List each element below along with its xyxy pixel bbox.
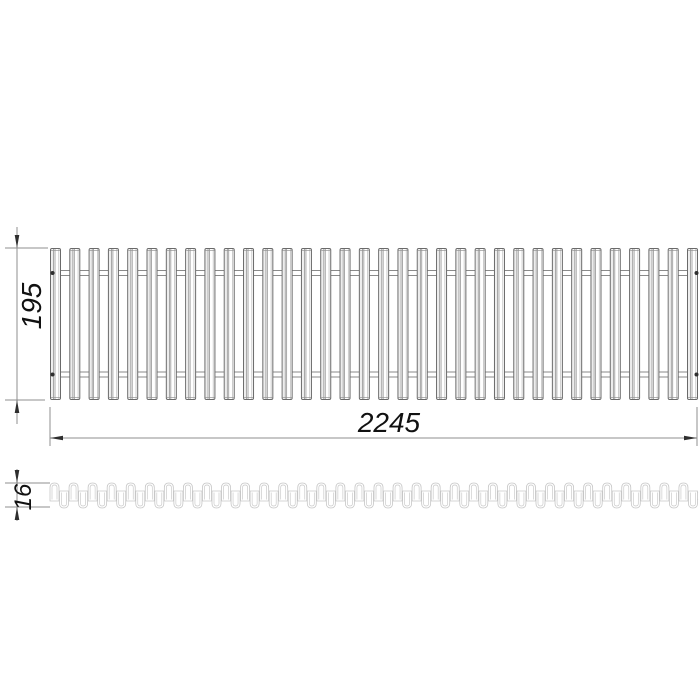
profile-height-dimension-16: 16 (5, 469, 50, 521)
profile-height-dimension-label: 16 (10, 483, 37, 510)
grille-front-view (50, 249, 699, 400)
height-dimension-195: 195 (5, 227, 48, 424)
technical-drawing: 195 2245 16 (0, 0, 700, 700)
width-dimension-label: 2245 (357, 407, 421, 438)
drawing-sheet: 195 2245 16 (0, 0, 700, 700)
grille-profile-view (50, 483, 698, 508)
width-dimension-2245: 2245 (50, 407, 697, 446)
height-dimension-label: 195 (16, 282, 47, 329)
